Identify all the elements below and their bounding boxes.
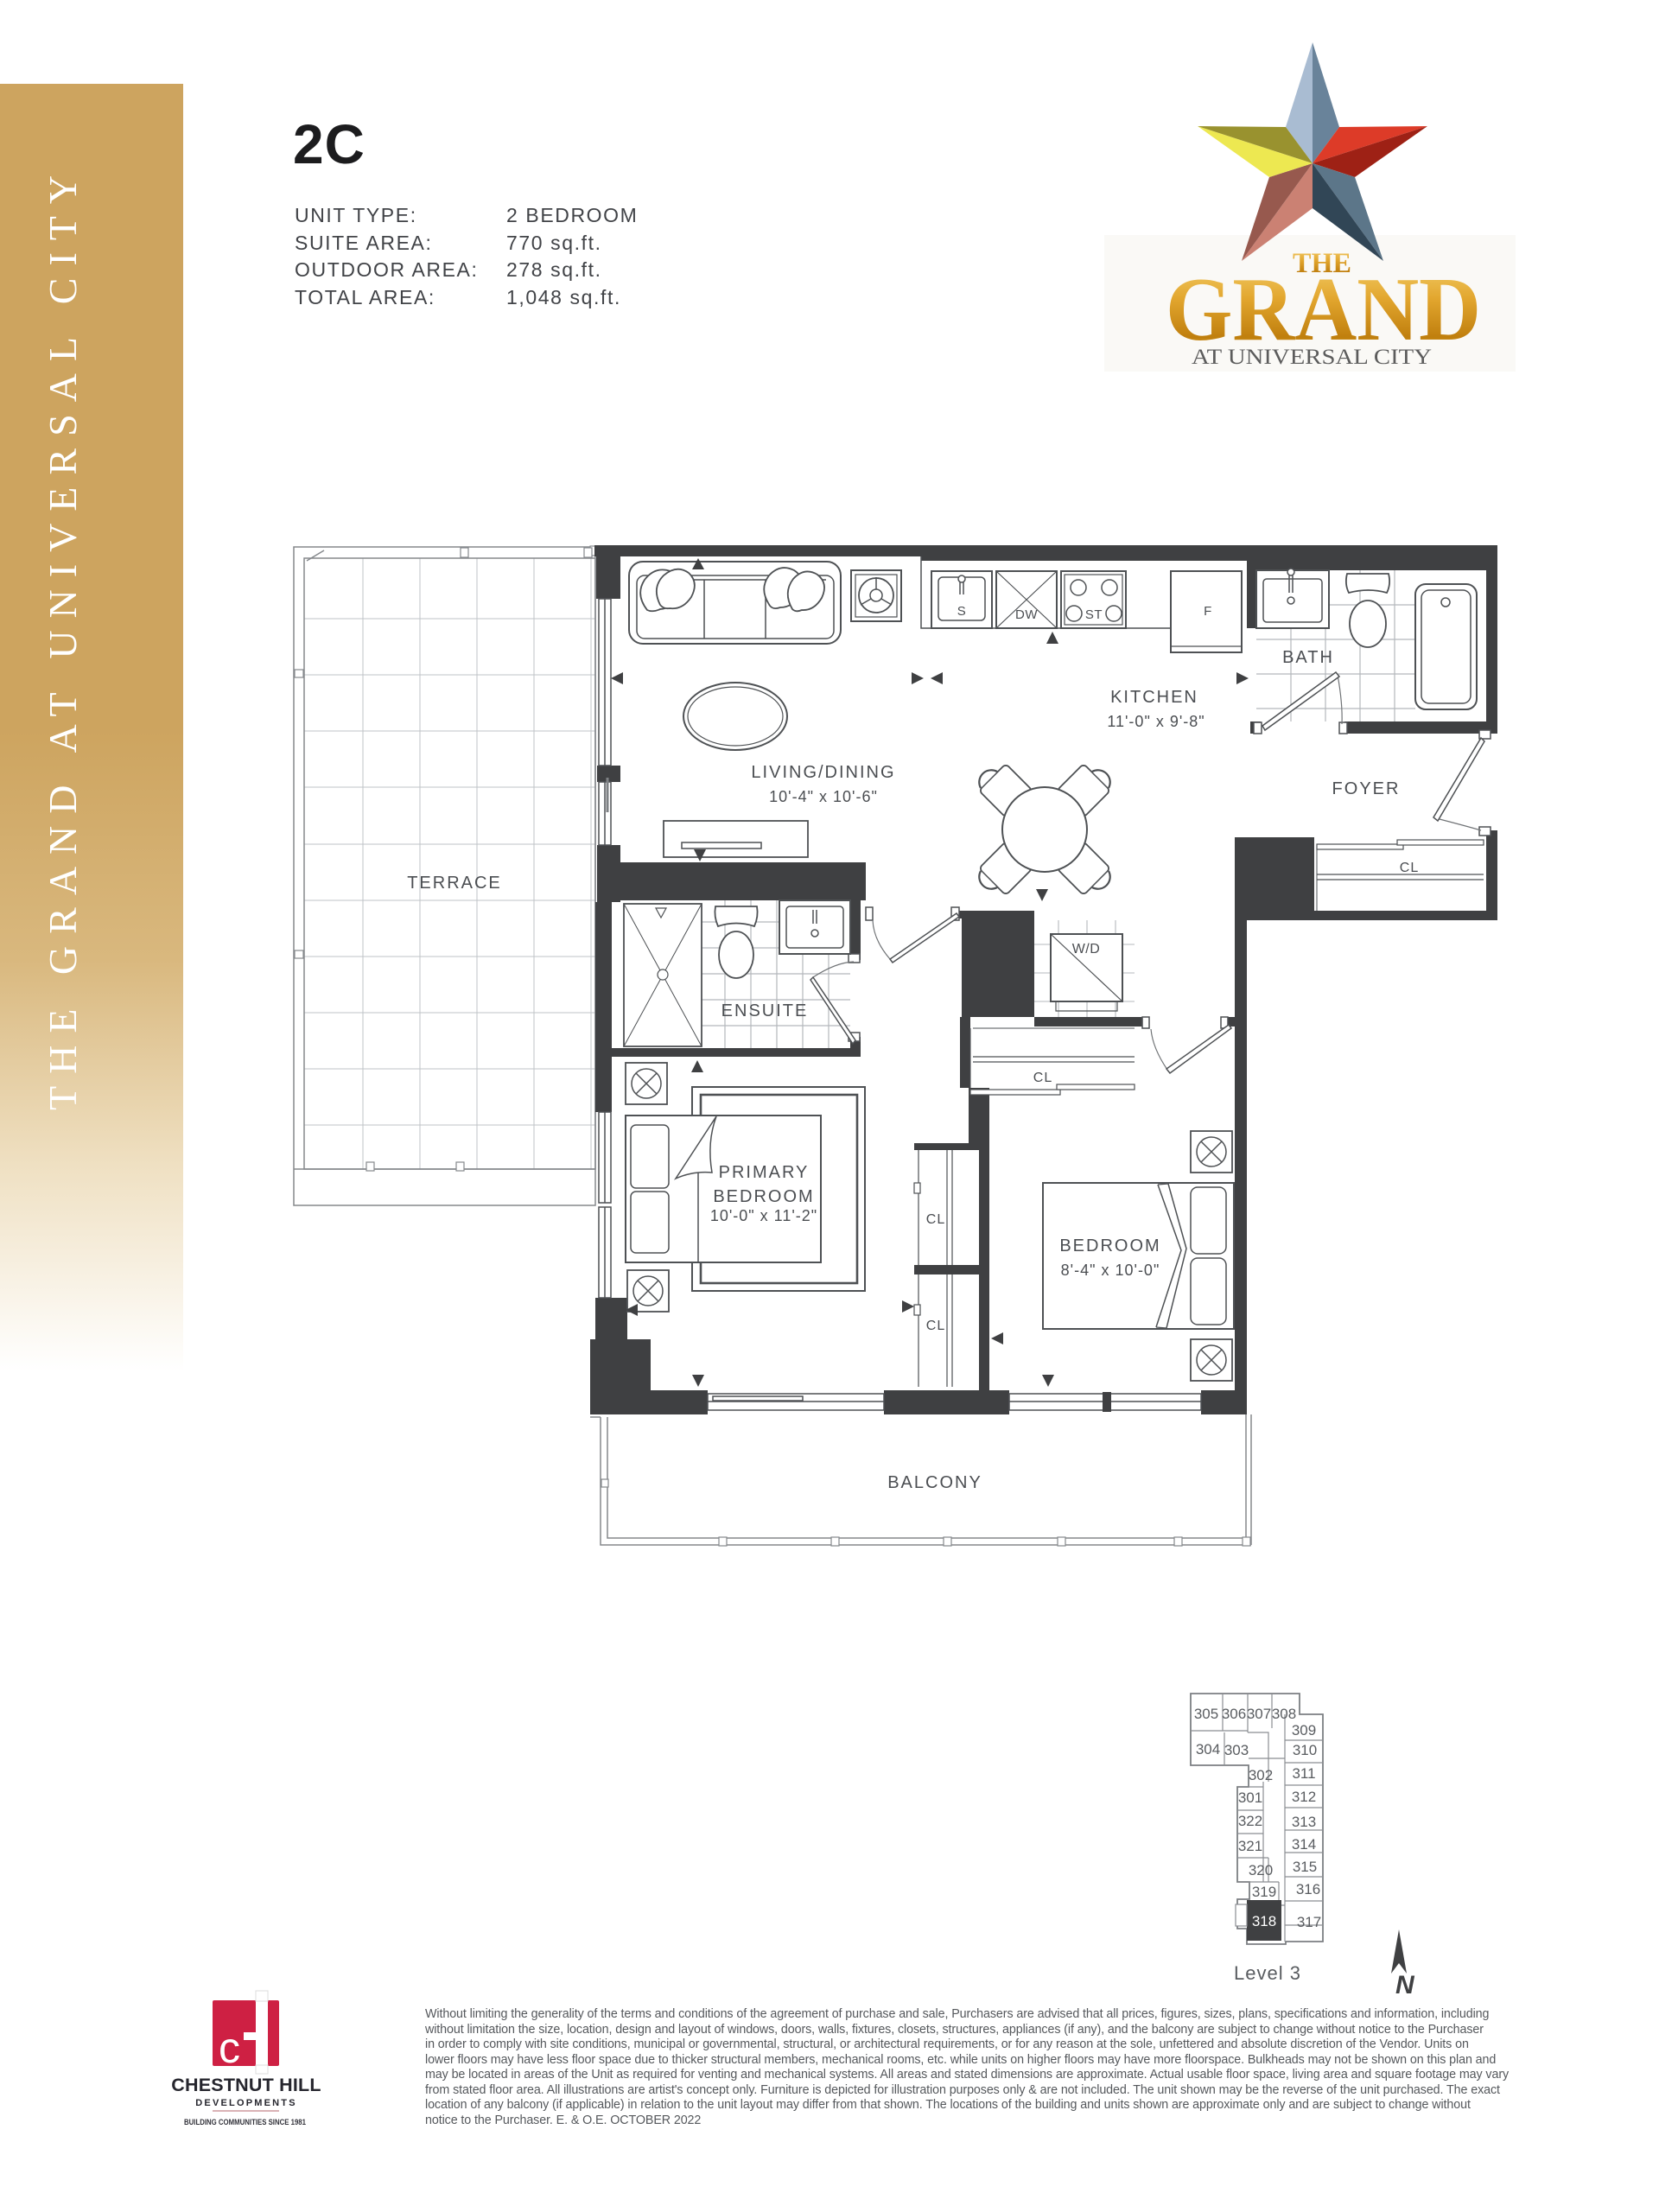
svg-text:GRAND: GRAND xyxy=(1166,258,1481,359)
svg-text:305: 305 xyxy=(1194,1706,1218,1722)
svg-text:10'-0" x 11'-2": 10'-0" x 11'-2" xyxy=(710,1207,817,1224)
svg-text:309: 309 xyxy=(1292,1722,1316,1738)
svg-text:CL: CL xyxy=(926,1319,945,1333)
svg-text:314: 314 xyxy=(1292,1836,1316,1853)
svg-text:318: 318 xyxy=(1252,1913,1276,1929)
svg-text:311: 311 xyxy=(1292,1765,1315,1782)
svg-text:315: 315 xyxy=(1293,1859,1317,1875)
svg-text:304: 304 xyxy=(1196,1741,1220,1758)
svg-text:313: 313 xyxy=(1292,1814,1316,1830)
svg-text:310: 310 xyxy=(1293,1742,1317,1758)
svg-text:LIVING/DINING: LIVING/DINING xyxy=(751,763,895,782)
svg-text:ENSUITE: ENSUITE xyxy=(721,1001,809,1020)
svg-text:10'-4" x 10'-6": 10'-4" x 10'-6" xyxy=(769,788,878,805)
svg-text:306: 306 xyxy=(1222,1706,1246,1722)
svg-text:BEDROOM: BEDROOM xyxy=(713,1187,814,1206)
svg-text:KITCHEN: KITCHEN xyxy=(1110,688,1198,707)
svg-text:8'-4" x 10'-0": 8'-4" x 10'-0" xyxy=(1061,1262,1160,1279)
svg-text:317: 317 xyxy=(1297,1914,1321,1930)
svg-text:319: 319 xyxy=(1252,1884,1276,1900)
svg-text:Level 3: Level 3 xyxy=(1234,1962,1301,1984)
svg-text:303: 303 xyxy=(1224,1742,1249,1758)
svg-text:PRIMARY: PRIMARY xyxy=(719,1163,810,1182)
svg-text:TERRACE: TERRACE xyxy=(407,874,502,893)
svg-text:CL: CL xyxy=(1033,1071,1052,1085)
svg-text:W/D: W/D xyxy=(1072,942,1101,957)
svg-text:N: N xyxy=(1395,1971,1415,1999)
svg-text:BEDROOM: BEDROOM xyxy=(1059,1236,1160,1255)
svg-text:BATH: BATH xyxy=(1282,648,1334,667)
svg-text:CL: CL xyxy=(1400,861,1419,875)
svg-text:F: F xyxy=(1204,604,1212,619)
svg-text:321: 321 xyxy=(1238,1838,1262,1854)
svg-text:DW: DW xyxy=(1015,607,1038,622)
svg-text:CL: CL xyxy=(926,1212,945,1227)
svg-text:BALCONY: BALCONY xyxy=(887,1473,982,1492)
svg-text:307: 307 xyxy=(1247,1706,1271,1722)
svg-text:302: 302 xyxy=(1249,1767,1273,1783)
svg-text:320: 320 xyxy=(1249,1862,1273,1878)
svg-text:11'-0" x 9'-8": 11'-0" x 9'-8" xyxy=(1107,713,1205,730)
svg-text:308: 308 xyxy=(1272,1706,1296,1722)
svg-text:BUILDING COMMUNITIES SINCE 198: BUILDING COMMUNITIES SINCE 1981 xyxy=(184,2118,307,2127)
svg-text:CHESTNUT HILL: CHESTNUT HILL xyxy=(171,2075,321,2095)
svg-text:c: c xyxy=(219,2024,240,2072)
svg-text:301: 301 xyxy=(1238,1789,1262,1806)
svg-text:ST: ST xyxy=(1085,607,1103,622)
svg-text:DEVELOPMENTS: DEVELOPMENTS xyxy=(195,2098,296,2108)
svg-text:S: S xyxy=(957,604,967,619)
svg-text:FOYER: FOYER xyxy=(1332,779,1401,798)
svg-text:322: 322 xyxy=(1238,1813,1262,1829)
svg-text:316: 316 xyxy=(1296,1881,1320,1897)
svg-text:312: 312 xyxy=(1292,1789,1316,1805)
svg-text:AT UNIVERSAL CITY: AT UNIVERSAL CITY xyxy=(1192,346,1432,369)
